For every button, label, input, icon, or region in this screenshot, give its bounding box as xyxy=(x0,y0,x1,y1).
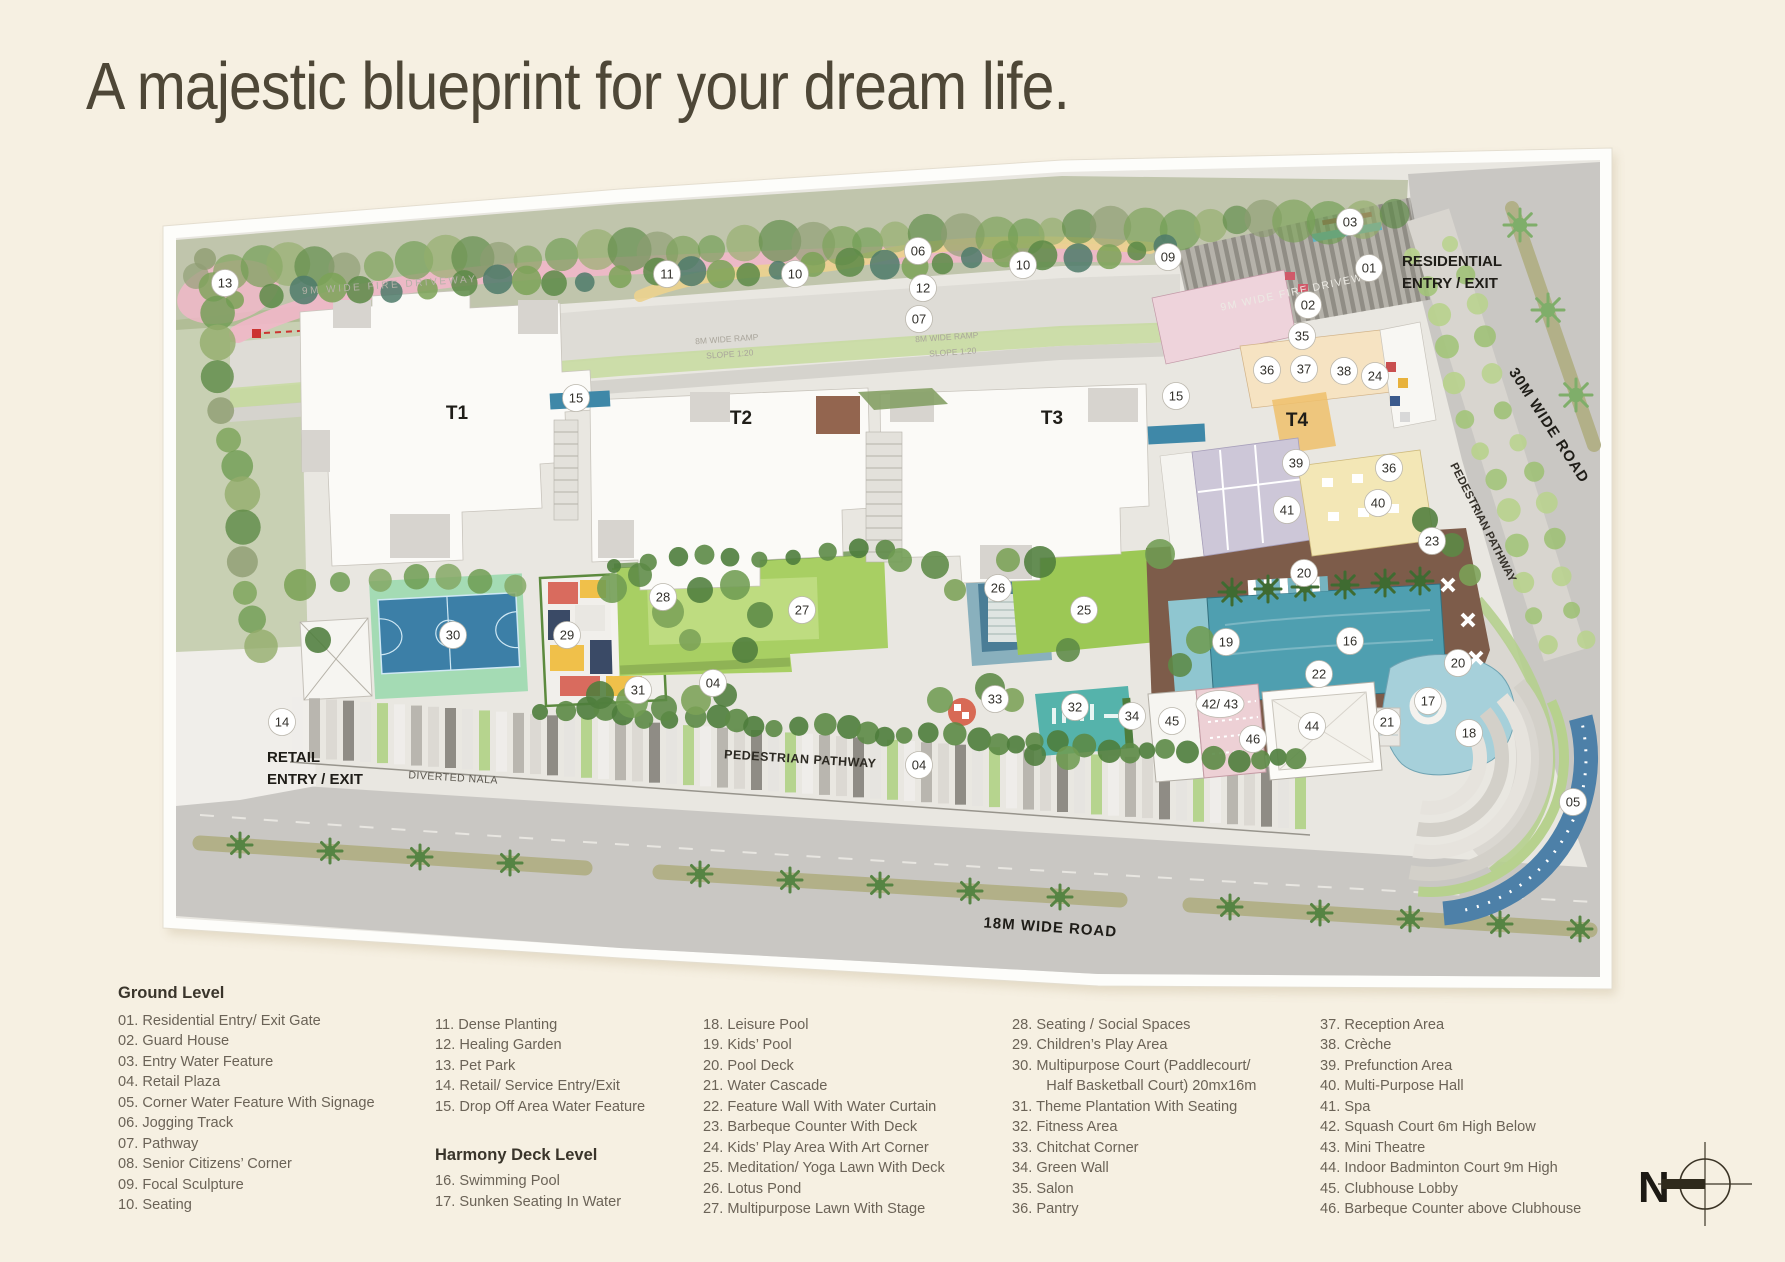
svg-text:15: 15 xyxy=(1169,389,1183,404)
palm-tree-icon xyxy=(1255,576,1281,602)
tree-icon xyxy=(1552,566,1572,586)
legend-item: 19. Kids’ Pool xyxy=(703,1035,1003,1055)
retail-shop-unit xyxy=(989,747,1000,807)
retail-shop-unit xyxy=(955,745,966,805)
tree-icon xyxy=(743,716,764,737)
plan-marker-14: 14 xyxy=(269,709,296,736)
legend-item: 36. Pantry xyxy=(1012,1199,1312,1219)
svg-text:22: 22 xyxy=(1312,667,1326,682)
residential-entry-label: ENTRY / EXIT xyxy=(1402,275,1498,292)
plan-marker-05: 05 xyxy=(1560,789,1587,816)
legend-item: 24. Kids’ Play Area With Art Corner xyxy=(703,1138,1003,1158)
tree-icon xyxy=(233,581,257,605)
svg-text:27: 27 xyxy=(795,603,809,618)
plan-marker-18: 18 xyxy=(1456,720,1483,747)
retail-shop-unit xyxy=(479,710,490,770)
tree-icon xyxy=(687,577,713,603)
plan-marker-04: 04 xyxy=(700,670,727,697)
tree-icon xyxy=(483,264,513,294)
plan-marker-29: 29 xyxy=(554,622,581,649)
tree-icon xyxy=(1194,209,1227,242)
tree-icon xyxy=(1505,534,1529,558)
retail-shop-unit xyxy=(700,726,711,786)
retail-shop-unit xyxy=(683,725,694,785)
tree-icon xyxy=(888,548,912,572)
tree-icon xyxy=(1168,653,1192,677)
tree-icon xyxy=(1251,750,1270,769)
plan-marker-09: 09 xyxy=(1155,244,1182,271)
tree-icon xyxy=(1536,492,1558,514)
retail-shop-unit xyxy=(428,707,439,767)
legend-item: 11. Dense Planting xyxy=(435,1015,705,1035)
tree-icon xyxy=(1525,607,1542,624)
tree-icon xyxy=(651,695,677,721)
svg-text:42/ 43: 42/ 43 xyxy=(1202,697,1238,712)
tree-icon xyxy=(785,550,800,565)
svg-text:45: 45 xyxy=(1165,714,1179,729)
legend-item: 21. Water Cascade xyxy=(703,1076,1003,1096)
legend-header: Ground Level xyxy=(118,984,418,1003)
svg-text:13: 13 xyxy=(218,276,232,291)
legend-column: 37. Reception Area38. Crèche39. Prefunct… xyxy=(1320,984,1650,1220)
plan-marker-22: 22 xyxy=(1306,661,1333,688)
plan-marker-12: 12 xyxy=(910,275,937,302)
tree-icon xyxy=(849,538,869,558)
svg-text:37: 37 xyxy=(1297,362,1311,377)
retail-entry-label: RETAIL xyxy=(267,749,320,766)
tree-icon xyxy=(1485,469,1507,491)
plan-marker-4243: 42/ 43 xyxy=(1196,691,1244,718)
svg-text:03: 03 xyxy=(1343,215,1357,230)
tree-icon xyxy=(1577,631,1595,649)
svg-text:41: 41 xyxy=(1280,503,1294,518)
tree-icon xyxy=(1467,293,1488,314)
retail-shop-unit xyxy=(1006,748,1017,808)
plan-marker-20: 20 xyxy=(1445,650,1472,677)
palm-tree-icon xyxy=(958,879,982,903)
tree-icon xyxy=(679,629,701,651)
tree-icon xyxy=(732,637,758,663)
tree-icon xyxy=(284,569,316,601)
retail-shop-unit xyxy=(360,702,371,762)
retail-shop-unit xyxy=(938,743,949,803)
tree-icon xyxy=(609,265,632,288)
tree-icon xyxy=(1056,746,1080,770)
palm-tree-icon xyxy=(318,839,342,863)
svg-text:44: 44 xyxy=(1305,719,1319,734)
svg-text:35: 35 xyxy=(1295,329,1309,344)
tree-icon xyxy=(468,569,493,594)
plan-marker-17: 17 xyxy=(1415,688,1442,715)
retail-shop-unit xyxy=(377,703,388,763)
legend-item: 10. Seating xyxy=(118,1195,418,1215)
tree-icon xyxy=(1202,746,1226,770)
retail-shop-unit xyxy=(462,709,473,769)
plan-marker-27: 27 xyxy=(789,597,816,624)
legend-item: 29. Children’s Play Area xyxy=(1012,1035,1312,1055)
tree-icon xyxy=(1459,564,1481,586)
svg-text:04: 04 xyxy=(912,758,926,773)
tree-icon xyxy=(1127,242,1146,261)
plan-marker-40: 40 xyxy=(1365,490,1392,517)
palm-tree-icon xyxy=(1308,901,1332,925)
retail-shop-unit xyxy=(632,721,643,781)
tree-icon xyxy=(504,575,526,597)
legend-item: 13. Pet Park xyxy=(435,1056,705,1076)
legend-item: 28. Seating / Social Spaces xyxy=(1012,1015,1312,1035)
plan-marker-04: 04 xyxy=(906,752,933,779)
legend-item: 20. Pool Deck xyxy=(703,1056,1003,1076)
tree-icon xyxy=(765,720,782,737)
plan-marker-07: 07 xyxy=(906,306,933,333)
tree-icon xyxy=(996,548,1020,572)
plan-marker-03: 03 xyxy=(1337,209,1364,236)
tree-icon xyxy=(586,681,614,709)
svg-text:46: 46 xyxy=(1246,732,1260,747)
legend-item: 37. Reception Area xyxy=(1320,1015,1650,1035)
legend-item: 02. Guard House xyxy=(118,1031,418,1051)
retail-shop-unit xyxy=(343,701,354,761)
tree-icon xyxy=(676,256,706,286)
plan-marker-44: 44 xyxy=(1299,713,1326,740)
legend-item: 46. Barbeque Counter above Clubhouse xyxy=(1320,1199,1650,1219)
plan-marker-26: 26 xyxy=(985,575,1012,602)
tree-icon xyxy=(1024,546,1056,578)
plan-marker-23: 23 xyxy=(1419,528,1446,555)
legend-item: 05. Corner Water Feature With Signage xyxy=(118,1093,418,1113)
tree-icon xyxy=(305,627,331,653)
tree-icon xyxy=(1471,442,1489,460)
legend-item: 30. Multipurpose Court (Paddlecourt/ Hal… xyxy=(1012,1056,1312,1097)
palm-tree-icon xyxy=(1218,895,1242,919)
tree-icon xyxy=(1524,462,1544,482)
tree-icon xyxy=(238,606,266,634)
palm-tree-icon xyxy=(408,845,432,869)
clubhouse-lobby xyxy=(1148,690,1204,782)
tree-icon xyxy=(751,552,767,568)
retail-shop-unit xyxy=(615,720,626,780)
tree-icon xyxy=(1145,539,1175,569)
tree-icon xyxy=(1494,401,1512,419)
plan-marker-21: 21 xyxy=(1374,709,1401,736)
plan-marker-28: 28 xyxy=(650,584,677,611)
palm-tree-icon xyxy=(1048,885,1072,909)
svg-text:23: 23 xyxy=(1425,534,1439,549)
retail-shop-unit xyxy=(445,708,456,768)
retail-shop-unit xyxy=(1142,758,1153,818)
palm-tree-icon xyxy=(1219,579,1245,605)
retail-shop-unit xyxy=(411,706,422,766)
legend-header: Harmony Deck Level xyxy=(435,1146,705,1165)
plan-marker-06: 06 xyxy=(905,238,932,265)
legend-item: 06. Jogging Track xyxy=(118,1113,418,1133)
svg-text:05: 05 xyxy=(1566,795,1580,810)
svg-text:38: 38 xyxy=(1337,364,1351,379)
tree-icon xyxy=(1482,363,1503,384)
legend-item: 12. Healing Garden xyxy=(435,1035,705,1055)
palm-tree-icon xyxy=(1372,570,1398,596)
tree-icon xyxy=(1228,750,1251,773)
tower-label-t2: T2 xyxy=(730,408,752,429)
legend-item: 41. Spa xyxy=(1320,1097,1650,1117)
svg-text:09: 09 xyxy=(1161,250,1175,265)
svg-text:14: 14 xyxy=(275,715,289,730)
legend-item: 40. Multi-Purpose Hall xyxy=(1320,1076,1650,1096)
tree-icon xyxy=(736,263,760,287)
tree-icon xyxy=(1497,498,1521,522)
retail-shop-unit xyxy=(972,746,983,806)
plan-marker-31: 31 xyxy=(625,677,652,704)
svg-text:20: 20 xyxy=(1451,656,1465,671)
tree-icon xyxy=(259,284,283,308)
svg-text:19: 19 xyxy=(1219,635,1233,650)
plan-marker-10: 10 xyxy=(1010,252,1037,279)
plan-marker-36: 36 xyxy=(1254,357,1281,384)
tree-icon xyxy=(1186,626,1214,654)
tree-icon xyxy=(1539,635,1558,654)
legend-item: 32. Fitness Area xyxy=(1012,1117,1312,1137)
tree-icon xyxy=(720,570,750,600)
legend-item: 39. Prefunction Area xyxy=(1320,1056,1650,1076)
tree-icon xyxy=(369,569,392,592)
tree-icon xyxy=(1443,372,1465,394)
plan-marker-34: 34 xyxy=(1119,703,1146,730)
tree-icon xyxy=(330,572,350,592)
legend-item: 43. Mini Theatre xyxy=(1320,1138,1650,1158)
retail-shop-unit xyxy=(547,715,558,775)
tree-icon xyxy=(932,253,953,274)
svg-text:06: 06 xyxy=(911,244,925,259)
palm-tree-icon xyxy=(1532,294,1564,326)
plan-marker-15: 15 xyxy=(1163,383,1190,410)
tree-icon xyxy=(1455,410,1474,429)
svg-text:17: 17 xyxy=(1421,694,1435,709)
retail-shop-unit xyxy=(1108,756,1119,816)
tree-icon xyxy=(435,564,461,590)
svg-text:04: 04 xyxy=(706,676,720,691)
tree-icon xyxy=(927,687,953,713)
svg-text:36: 36 xyxy=(1382,461,1396,476)
svg-text:29: 29 xyxy=(560,628,574,643)
tree-icon xyxy=(918,722,939,743)
tree-icon xyxy=(1097,244,1122,269)
tree-icon xyxy=(201,360,234,393)
legend-item: 22. Feature Wall With Water Curtain xyxy=(703,1097,1003,1117)
svg-text:07: 07 xyxy=(912,312,926,327)
tree-icon xyxy=(694,545,714,565)
plan-marker-30: 30 xyxy=(440,622,467,649)
north-compass: N xyxy=(1638,1142,1752,1226)
tree-icon xyxy=(1563,602,1580,619)
retail-shop-unit xyxy=(394,704,405,764)
plan-marker-20: 20 xyxy=(1291,560,1318,587)
tree-icon xyxy=(597,573,627,603)
svg-text:11: 11 xyxy=(660,267,674,282)
svg-text:01: 01 xyxy=(1362,261,1376,276)
tree-icon xyxy=(875,727,895,747)
plan-marker-01: 01 xyxy=(1356,255,1383,282)
retail-shop-unit xyxy=(649,723,660,783)
plan-marker-41: 41 xyxy=(1274,497,1301,524)
tree-icon xyxy=(244,629,278,663)
tower-label-t1: T1 xyxy=(446,403,469,424)
tree-icon xyxy=(961,247,982,268)
tree-icon xyxy=(1007,735,1025,753)
svg-text:24: 24 xyxy=(1368,369,1382,384)
compass-needle-icon xyxy=(1662,1179,1705,1189)
svg-text:10: 10 xyxy=(1016,258,1030,273)
palm-tree-icon xyxy=(1398,907,1422,931)
svg-text:02: 02 xyxy=(1301,298,1315,313)
tree-icon xyxy=(814,713,837,736)
legend-item: 09. Focal Sculpture xyxy=(118,1175,418,1195)
tree-icon xyxy=(532,704,548,720)
legend-item: 04. Retail Plaza xyxy=(118,1072,418,1092)
tree-icon xyxy=(512,266,541,295)
svg-text:34: 34 xyxy=(1125,709,1139,724)
retail-shop-unit xyxy=(513,713,524,773)
svg-text:25: 25 xyxy=(1077,603,1091,618)
tree-icon xyxy=(1435,335,1459,359)
palm-tree-icon xyxy=(868,873,892,897)
legend-item: 25. Meditation/ Yoga Lawn With Deck xyxy=(703,1158,1003,1178)
svg-text:16: 16 xyxy=(1343,634,1357,649)
tree-icon xyxy=(943,722,966,745)
plan-marker-36: 36 xyxy=(1376,455,1403,482)
tree-icon xyxy=(207,397,234,424)
tree-icon xyxy=(628,563,652,587)
plan-marker-33: 33 xyxy=(982,686,1009,713)
boundary-mark xyxy=(252,329,261,338)
tree-icon xyxy=(1120,743,1141,764)
retail-shop-unit xyxy=(530,714,541,774)
tree-icon xyxy=(1155,739,1175,759)
plan-marker-35: 35 xyxy=(1289,323,1316,350)
svg-text:39: 39 xyxy=(1289,456,1303,471)
palm-tree-icon xyxy=(1504,209,1536,241)
legend-item: 33. Chitchat Corner xyxy=(1012,1138,1312,1158)
tree-icon xyxy=(988,733,1010,755)
palm-tree-icon xyxy=(498,851,522,875)
tree-icon xyxy=(194,248,216,270)
legend-item: 23. Barbeque Counter With Deck xyxy=(703,1117,1003,1137)
tree-icon xyxy=(870,250,900,280)
tree-icon xyxy=(1509,434,1526,451)
retail-shop-unit xyxy=(666,724,677,784)
palm-tree-icon xyxy=(688,862,712,886)
svg-text:18: 18 xyxy=(1462,726,1476,741)
legend-item: 16. Swimming Pool xyxy=(435,1171,705,1191)
plan-marker-39: 39 xyxy=(1283,450,1310,477)
palm-tree-icon xyxy=(1407,568,1433,594)
legend-column: 18. Leisure Pool19. Kids’ Pool20. Pool D… xyxy=(703,984,1003,1220)
tree-icon xyxy=(921,551,949,579)
legend-item: 42. Squash Court 6m High Below xyxy=(1320,1117,1650,1137)
legend-item: 17. Sunken Seating In Water xyxy=(435,1192,705,1212)
tree-icon xyxy=(896,727,913,744)
tree-icon xyxy=(1474,325,1496,347)
plan-marker-25: 25 xyxy=(1071,597,1098,624)
tree-icon xyxy=(1544,528,1566,550)
tree-icon xyxy=(1176,740,1199,763)
svg-text:32: 32 xyxy=(1068,700,1082,715)
tree-icon xyxy=(1098,740,1121,763)
legend-column: Ground Level01. Residential Entry/ Exit … xyxy=(118,984,418,1216)
retail-shop-unit xyxy=(326,699,337,759)
svg-text:33: 33 xyxy=(988,692,1002,707)
legend-item: 03. Entry Water Feature xyxy=(118,1052,418,1072)
tree-icon xyxy=(200,325,236,361)
retail-shop-unit xyxy=(887,740,898,800)
retail-shop-unit xyxy=(581,718,592,778)
tree-icon xyxy=(835,248,864,277)
tree-icon xyxy=(225,476,261,512)
tree-icon xyxy=(1139,742,1156,759)
svg-text:30: 30 xyxy=(446,628,460,643)
plan-marker-24: 24 xyxy=(1362,363,1389,390)
retail-shop-unit xyxy=(564,717,575,777)
tree-icon xyxy=(967,727,991,751)
plan-marker-38: 38 xyxy=(1331,358,1358,385)
retail-entry-label: ENTRY / EXIT xyxy=(267,771,363,788)
legend-item: 38. Crèche xyxy=(1320,1035,1650,1055)
tree-icon xyxy=(607,559,621,573)
legend-item: 07. Pathway xyxy=(118,1134,418,1154)
palm-tree-icon xyxy=(778,868,802,892)
plan-marker-15: 15 xyxy=(563,385,590,412)
tree-icon xyxy=(1056,638,1080,662)
plan-marker-46: 46 xyxy=(1240,726,1267,753)
retail-shop-unit xyxy=(1125,757,1136,817)
legend-item: 08. Senior Citizens’ Corner xyxy=(118,1154,418,1174)
legend-item: 14. Retail/ Service Entry/Exit xyxy=(435,1076,705,1096)
plan-marker-19: 19 xyxy=(1213,629,1240,656)
legend-item: 01. Residential Entry/ Exit Gate xyxy=(118,1011,418,1031)
plan-marker-02: 02 xyxy=(1295,292,1322,319)
tree-icon xyxy=(944,579,966,601)
plan-marker-37: 37 xyxy=(1291,356,1318,383)
legend-item: 15. Drop Off Area Water Feature xyxy=(435,1097,705,1117)
residential-entry-label: RESIDENTIAL xyxy=(1402,253,1502,270)
legend-item: 27. Multipurpose Lawn With Stage xyxy=(703,1199,1003,1219)
tree-icon xyxy=(819,543,837,561)
legend-item: 26. Lotus Pond xyxy=(703,1179,1003,1199)
legend-item: 35. Salon xyxy=(1012,1179,1312,1199)
svg-text:31: 31 xyxy=(631,683,645,698)
plan-marker-13: 13 xyxy=(212,270,239,297)
plan-marker-10: 10 xyxy=(782,261,809,288)
retail-shop-unit xyxy=(1091,754,1102,814)
palm-tree-icon xyxy=(1332,572,1358,598)
legend-item: 34. Green Wall xyxy=(1012,1158,1312,1178)
tree-icon xyxy=(225,509,260,544)
tree-icon xyxy=(721,548,740,567)
pergola-roof xyxy=(816,396,860,434)
palm-tree-icon xyxy=(1488,912,1512,936)
tree-icon xyxy=(1380,199,1410,229)
tree-icon xyxy=(789,717,808,736)
tree-icon xyxy=(216,428,241,453)
tree-icon xyxy=(669,547,688,566)
tree-icon xyxy=(1024,744,1046,766)
legend-item: 18. Leisure Pool xyxy=(703,1015,1003,1035)
svg-text:36: 36 xyxy=(1260,363,1274,378)
svg-text:28: 28 xyxy=(656,590,670,605)
tree-icon xyxy=(1442,236,1458,252)
tree-icon xyxy=(575,272,595,292)
palm-tree-icon xyxy=(228,833,252,857)
legend-item: 31. Theme Plantation With Seating xyxy=(1012,1097,1312,1117)
